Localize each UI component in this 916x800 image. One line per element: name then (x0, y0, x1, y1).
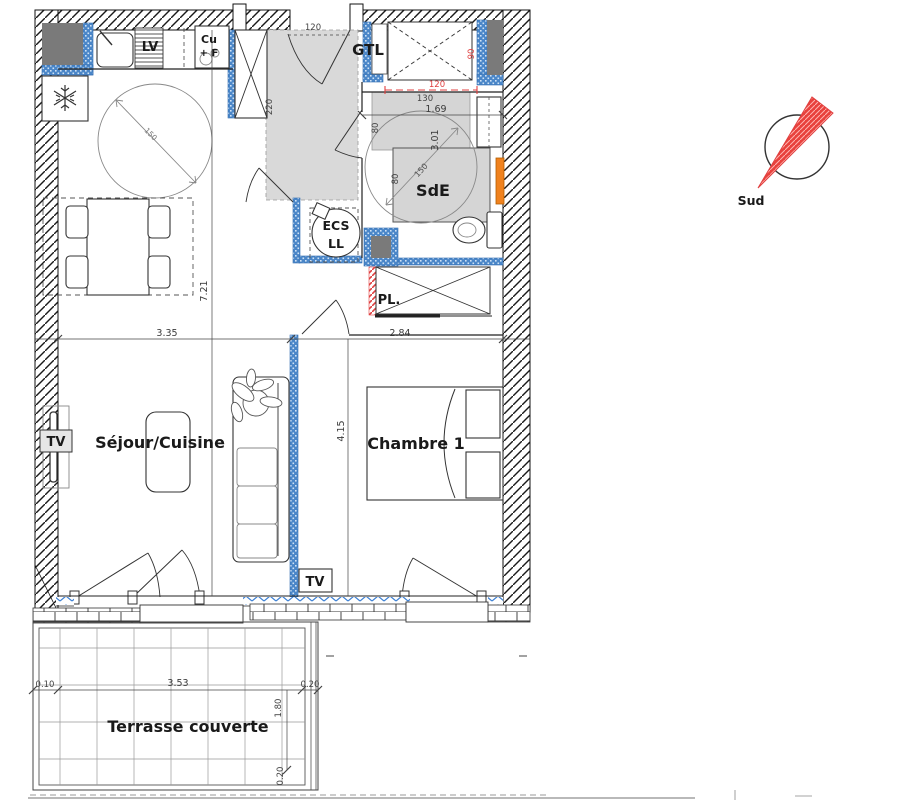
compass-south-label: Sud (738, 193, 765, 208)
label-ecs: ECS (323, 218, 350, 233)
dim-terrasse-right: 0.20 (301, 680, 320, 690)
label-cooktop-f: + F (200, 48, 219, 59)
dim-vanity: 130 (417, 94, 433, 104)
dim-shower-side-bottom: 80 (391, 174, 401, 185)
windows-and-base (33, 596, 530, 623)
terrace (28, 622, 812, 800)
red-hatch-strip (369, 267, 376, 315)
brick-base (488, 605, 530, 622)
dim-chambre-width: 2.84 (389, 328, 410, 339)
floor-plan-drawing: Séjour/Cuisine Chambre 1 SdE Terrasse co… (0, 0, 916, 800)
dim-terrasse-depth: 1.80 (274, 699, 284, 718)
dim-sde-width: 1.69 (425, 104, 446, 115)
floor-plan-canvas: Séjour/Cuisine Chambre 1 SdE Terrasse co… (0, 0, 916, 800)
chair (148, 256, 170, 288)
dim-terrasse-edge: 0.20 (276, 767, 286, 786)
dim-apartment-depth: 7.21 (199, 280, 210, 301)
label-gtl: GTL (352, 41, 384, 59)
living-room (40, 369, 289, 562)
dim-shower-red-width: 120 (429, 80, 445, 90)
duct-top-right (487, 20, 503, 75)
room-label-sde: SdE (416, 181, 450, 200)
toilet-tank (487, 212, 502, 248)
label-tv-chambre: TV (306, 575, 325, 590)
compass: Sud (738, 97, 833, 208)
label-pl: PL. (378, 293, 401, 308)
dim-terrasse-left: 0.10 (36, 680, 55, 690)
door-frame-tab (233, 4, 246, 31)
dim-entry-depth: 220 (265, 99, 275, 115)
kitchen-sink (97, 33, 133, 67)
room-label-terrasse: Terrasse couverte (107, 717, 268, 736)
entry-hall-floor (266, 30, 358, 200)
dim-turning-kitchen: 150 (143, 126, 160, 143)
duct-mid-core (371, 236, 391, 258)
label-tv-sejour: TV (47, 435, 66, 450)
duct-top-left (42, 23, 83, 65)
brick-base (250, 604, 406, 620)
label-ll: LL (328, 236, 344, 251)
chair (148, 206, 170, 238)
dim-chambre-depth: 4.15 (336, 420, 347, 441)
dim-entry-door: 120 (305, 23, 321, 33)
threshold (406, 602, 488, 622)
dining-table (87, 199, 149, 295)
south-needle-icon (758, 97, 833, 188)
door-frame-tab (350, 4, 363, 31)
dim-shower-red-depth: 90 (467, 49, 477, 60)
label-lv: LV (142, 40, 159, 55)
chair (66, 206, 88, 238)
window-glazing (56, 597, 74, 605)
partition-sejour-chambre (290, 335, 298, 597)
headboard-shelf (466, 452, 500, 498)
room-label-sejour: Séjour/Cuisine (95, 433, 225, 452)
radiator (496, 158, 504, 204)
threshold (140, 605, 243, 623)
chair (66, 256, 88, 288)
label-cooktop: Cu (201, 33, 217, 46)
bedroom (299, 387, 503, 592)
room-label-chambre: Chambre 1 (367, 434, 465, 453)
coffee-table (146, 412, 190, 492)
dim-sejour-width: 3.35 (156, 328, 177, 339)
headboard-shelf (466, 390, 500, 438)
dim-terrasse-width: 3.53 (167, 678, 188, 689)
window-glazing (488, 597, 503, 605)
dim-shower-side-top: 80 (371, 123, 381, 134)
brick-base (33, 608, 140, 623)
dim-sde-length: 3.01 (430, 129, 441, 150)
